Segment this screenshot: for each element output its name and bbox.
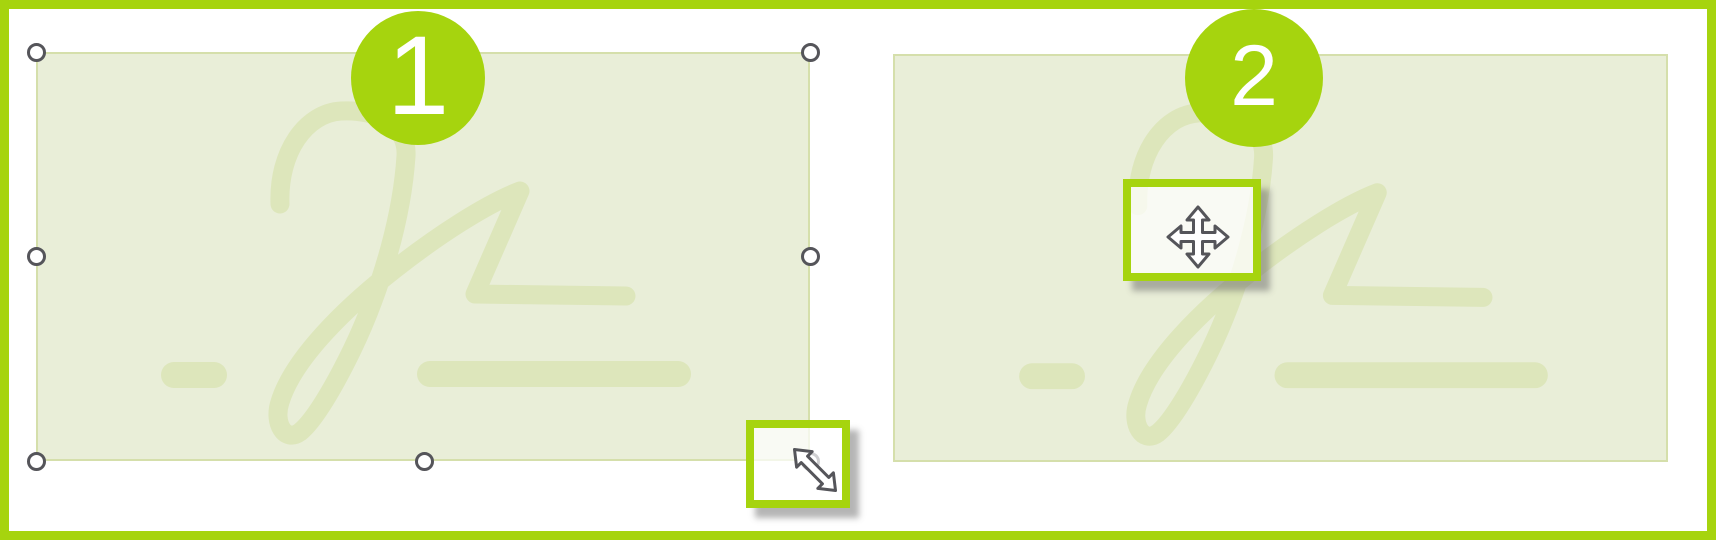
resize-handle-top-right[interactable] — [801, 43, 820, 62]
move-cursor-icon — [1166, 205, 1230, 269]
step-2-number: 2 — [1230, 33, 1278, 119]
resize-handle-top-left[interactable] — [27, 43, 46, 62]
resize-cursor-highlight-box — [746, 420, 850, 508]
step-1-badge: 1 — [351, 11, 485, 145]
resize-handle-middle-right[interactable] — [801, 247, 820, 266]
diagonal-resize-cursor-icon — [784, 439, 846, 501]
tutorial-screenshot: 1 2 — [0, 0, 1716, 540]
resize-handle-bottom-left[interactable] — [27, 452, 46, 471]
move-cursor-highlight-box — [1123, 179, 1261, 281]
resize-handle-bottom-middle[interactable] — [415, 452, 434, 471]
step-2-badge: 2 — [1185, 9, 1323, 147]
resize-handle-middle-left[interactable] — [27, 247, 46, 266]
step-1-number: 1 — [387, 20, 449, 132]
